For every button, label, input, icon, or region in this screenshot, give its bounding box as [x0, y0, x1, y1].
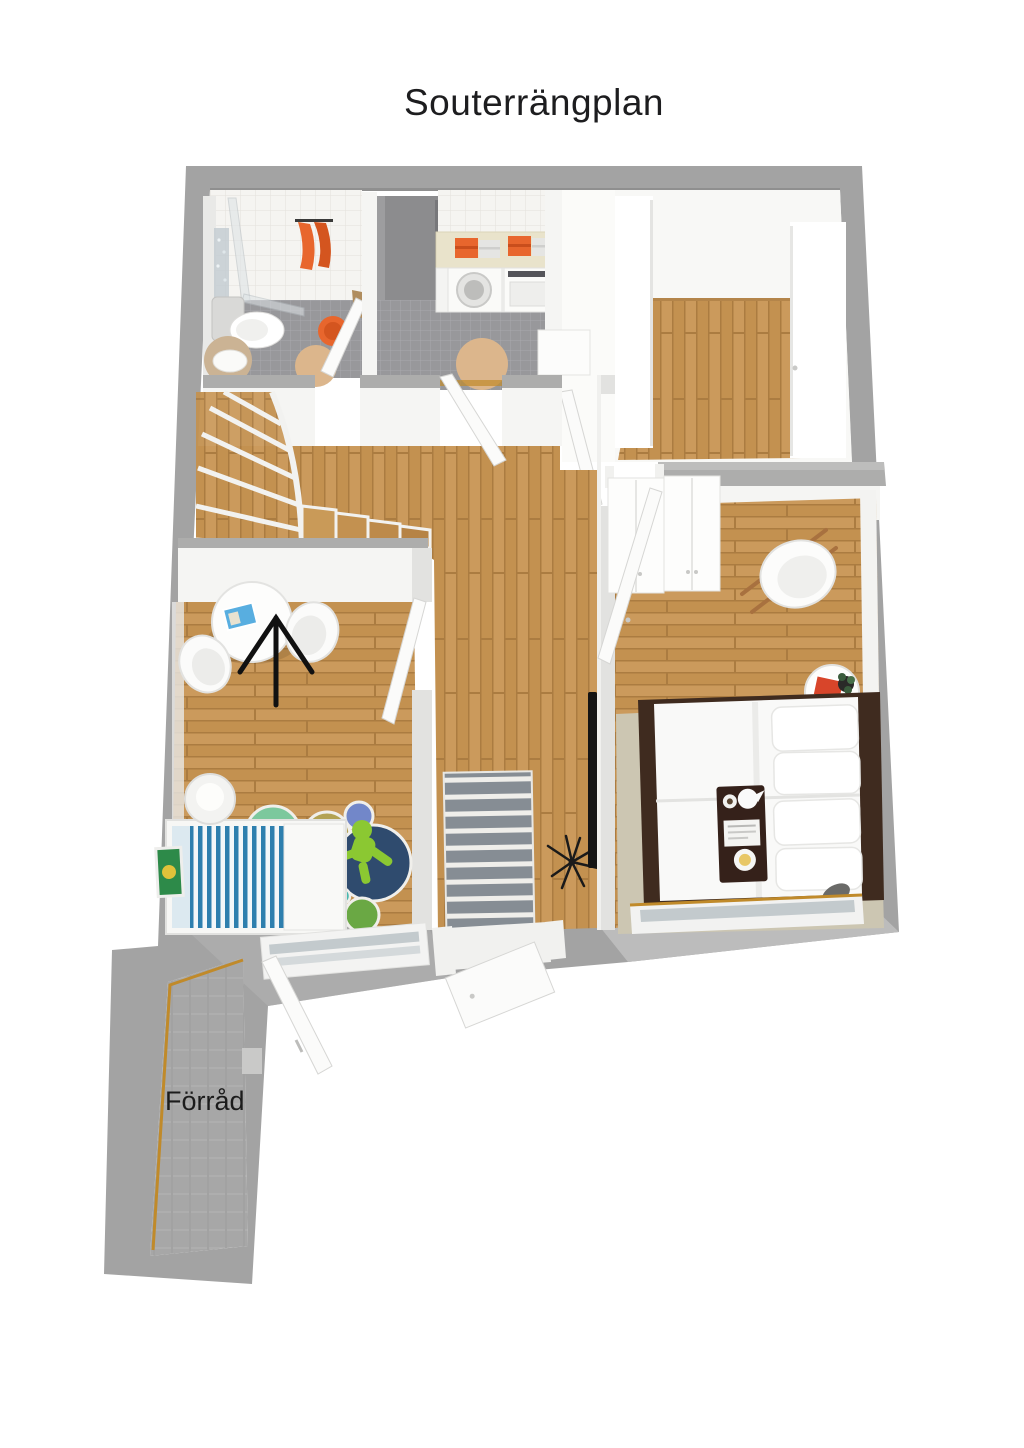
bedside-pouf-lamp [185, 774, 235, 824]
low-cabinet [538, 330, 590, 375]
wardrobe-right [790, 222, 846, 458]
kids-north-wall [178, 538, 428, 602]
kids-room [156, 538, 432, 934]
storage-wall-stub [242, 1048, 262, 1074]
breakfast-tray [716, 785, 767, 883]
wall-picture [156, 847, 183, 896]
master-bedroom [598, 462, 886, 934]
wardrobe-left [615, 196, 653, 448]
striped-runner-rug [444, 771, 535, 936]
entrance [432, 920, 566, 1028]
storage-room-label: Förråd [165, 1086, 245, 1116]
double-bed [638, 692, 884, 908]
washing-machine [448, 268, 502, 312]
storage-room: Förråd [150, 956, 332, 1256]
floor-plan-page: Souterrängplan [0, 0, 1024, 1448]
bath-laundry-divider-wall [362, 192, 377, 376]
tv-screen [588, 692, 597, 868]
floor-plan-drawing: Förråd [0, 0, 1024, 1448]
kids-bed [166, 820, 346, 934]
tall-gray-cabinet [377, 196, 438, 318]
bathroom [203, 190, 372, 387]
